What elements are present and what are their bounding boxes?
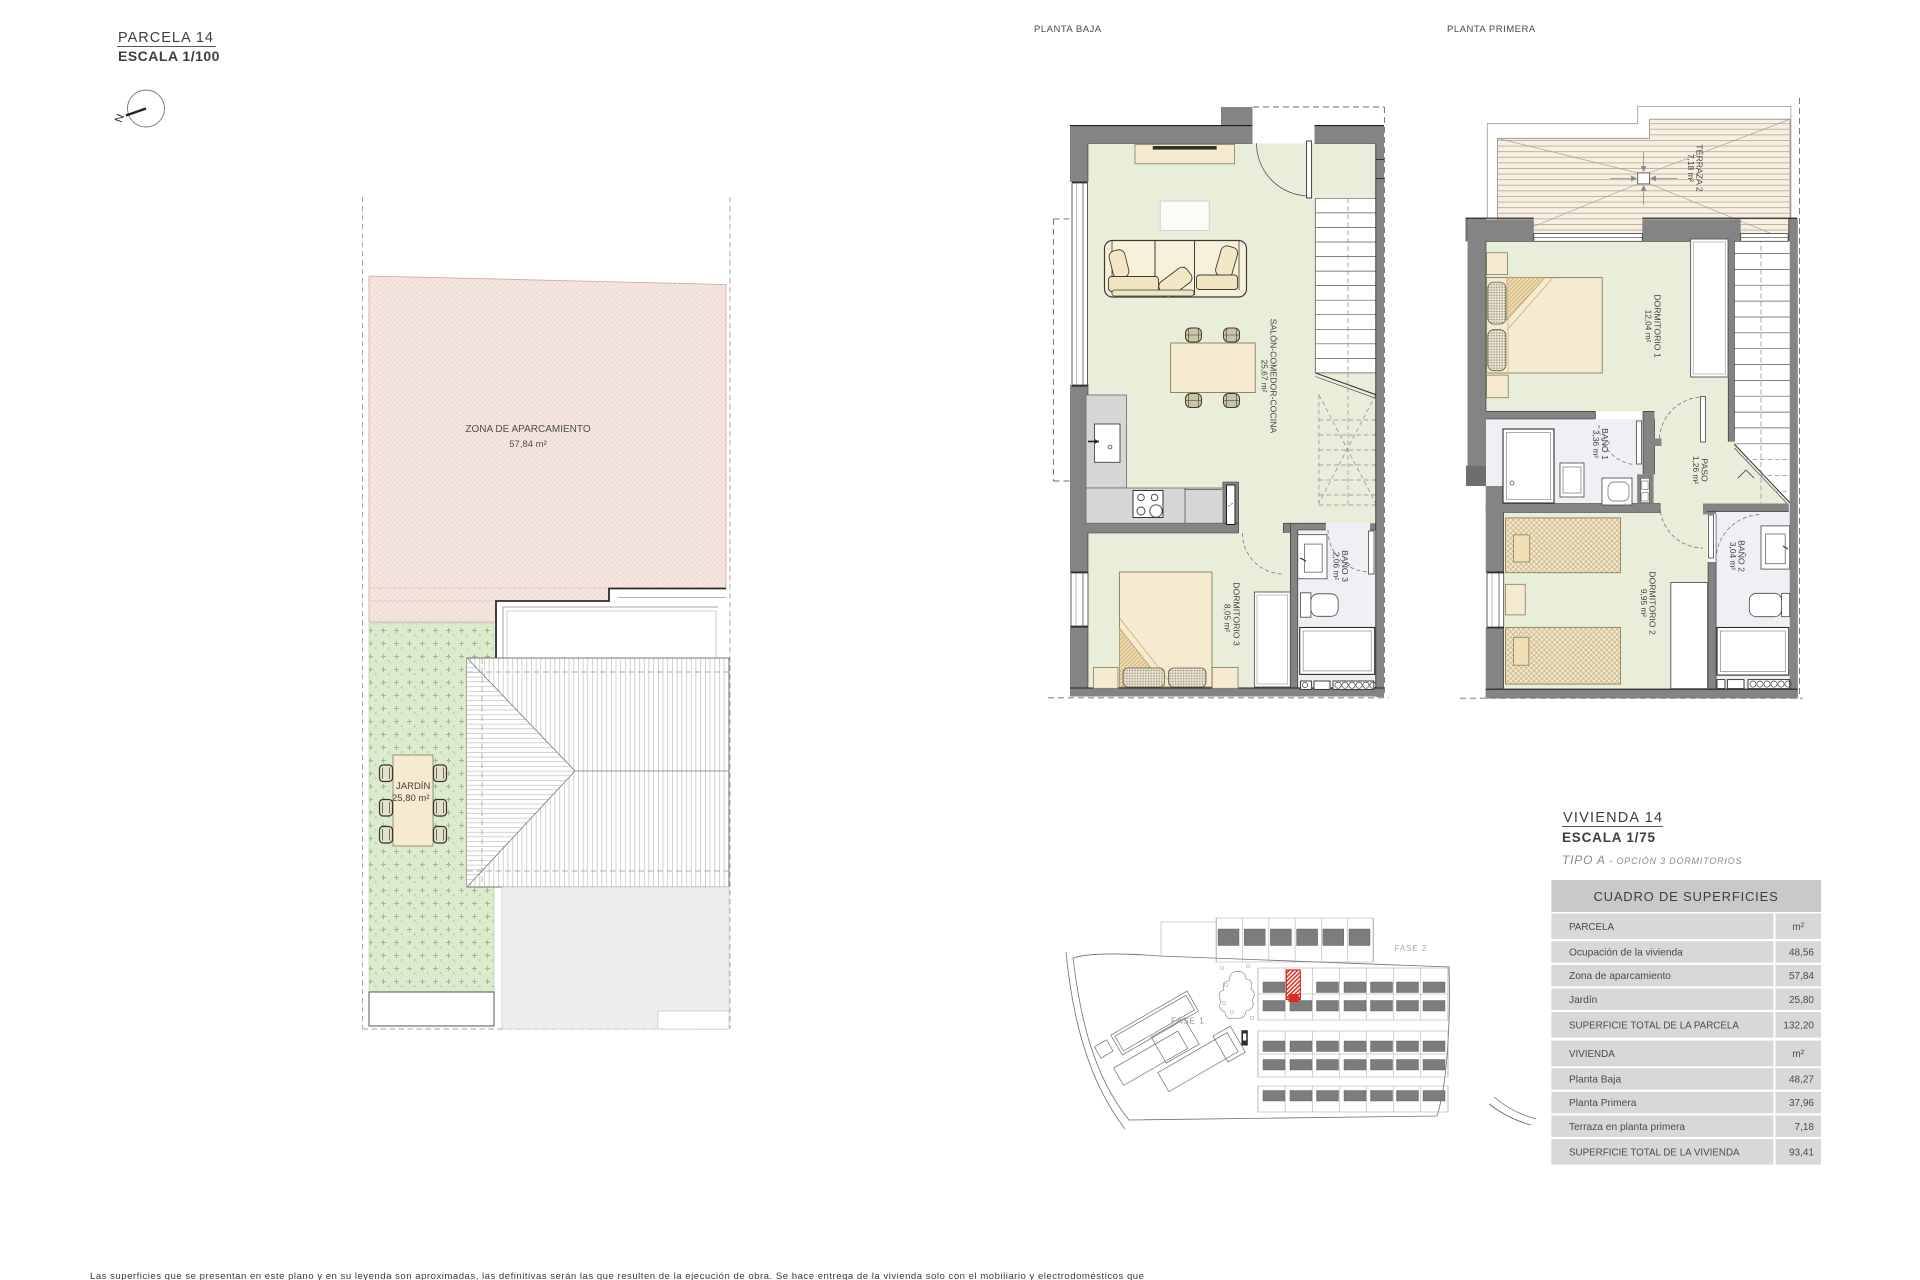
svg-text:Ocupación de la vivienda: Ocupación de la vivienda bbox=[1569, 948, 1683, 959]
svg-text:TIPO A - OPCIÓN 3 DORMITORIOS: TIPO A - OPCIÓN 3 DORMITORIOS bbox=[1562, 853, 1742, 867]
svg-text:7,18 m²: 7,18 m² bbox=[1686, 154, 1696, 182]
svg-text:1,26 m²: 1,26 m² bbox=[1691, 456, 1701, 484]
svg-text:Planta Baja: Planta Baja bbox=[1569, 1075, 1621, 1086]
svg-text:37,96: 37,96 bbox=[1789, 1098, 1814, 1109]
svg-text:57,84 m²: 57,84 m² bbox=[509, 439, 547, 450]
svg-text:25,80: 25,80 bbox=[1789, 995, 1814, 1006]
svg-text:48,56: 48,56 bbox=[1789, 948, 1814, 959]
svg-text:PARCELA 14: PARCELA 14 bbox=[118, 30, 214, 46]
svg-text:Zona de aparcamiento: Zona de aparcamiento bbox=[1569, 971, 1671, 982]
svg-text:9,95 m²: 9,95 m² bbox=[1639, 589, 1649, 617]
svg-text:3,04 m²: 3,04 m² bbox=[1728, 542, 1738, 570]
svg-text:93,41: 93,41 bbox=[1789, 1147, 1814, 1158]
svg-text:3,36 m²: 3,36 m² bbox=[1591, 430, 1601, 458]
svg-text:Jardín: Jardín bbox=[1569, 995, 1597, 1006]
svg-text:ESCALA 1/100: ESCALA 1/100 bbox=[118, 48, 220, 64]
svg-text:SUPERFICIE TOTAL DE LA VIVIEND: SUPERFICIE TOTAL DE LA VIVIENDA bbox=[1569, 1147, 1740, 1158]
svg-text:2,06 m²: 2,06 m² bbox=[1332, 552, 1342, 580]
svg-text:SUPERFICIE TOTAL DE LA PARCELA: SUPERFICIE TOTAL DE LA PARCELA bbox=[1569, 1020, 1739, 1031]
svg-text:PARCELA: PARCELA bbox=[1569, 922, 1614, 933]
svg-text:7,18: 7,18 bbox=[1795, 1122, 1815, 1133]
svg-text:FASE 1: FASE 1 bbox=[1171, 1016, 1205, 1026]
svg-text:VIVIENDA: VIVIENDA bbox=[1569, 1049, 1615, 1060]
svg-text:25,67 m²: 25,67 m² bbox=[1260, 360, 1270, 393]
svg-text:132,20: 132,20 bbox=[1783, 1020, 1814, 1031]
svg-text:Las superficies que se present: Las superficies que se presentan en este… bbox=[90, 1271, 1144, 1280]
svg-text:m²: m² bbox=[1792, 1049, 1804, 1060]
svg-text:PLANTA BAJA: PLANTA BAJA bbox=[1034, 24, 1102, 35]
svg-text:VIVIENDA 14: VIVIENDA 14 bbox=[1563, 810, 1663, 826]
svg-text:25,80 m²: 25,80 m² bbox=[392, 793, 430, 804]
svg-text:57,84: 57,84 bbox=[1789, 971, 1814, 982]
svg-text:Terraza en planta primera: Terraza en planta primera bbox=[1569, 1122, 1685, 1133]
svg-text:JARDÍN: JARDÍN bbox=[396, 781, 430, 792]
svg-text:CUADRO DE SUPERFICIES: CUADRO DE SUPERFICIES bbox=[1593, 889, 1778, 904]
svg-text:48,27: 48,27 bbox=[1789, 1075, 1814, 1086]
svg-text:ESCALA 1/75: ESCALA 1/75 bbox=[1562, 830, 1656, 845]
svg-text:m²: m² bbox=[1792, 922, 1804, 933]
svg-text:PLANTA PRIMERA: PLANTA PRIMERA bbox=[1447, 24, 1536, 35]
svg-text:8,05 m²: 8,05 m² bbox=[1223, 604, 1233, 632]
svg-text:12,04 m²: 12,04 m² bbox=[1644, 310, 1654, 343]
svg-text:Planta Primera: Planta Primera bbox=[1569, 1098, 1637, 1109]
svg-text:ZONA DE APARCAMIENTO: ZONA DE APARCAMIENTO bbox=[465, 424, 590, 435]
svg-text:FASE 2: FASE 2 bbox=[1395, 944, 1428, 953]
